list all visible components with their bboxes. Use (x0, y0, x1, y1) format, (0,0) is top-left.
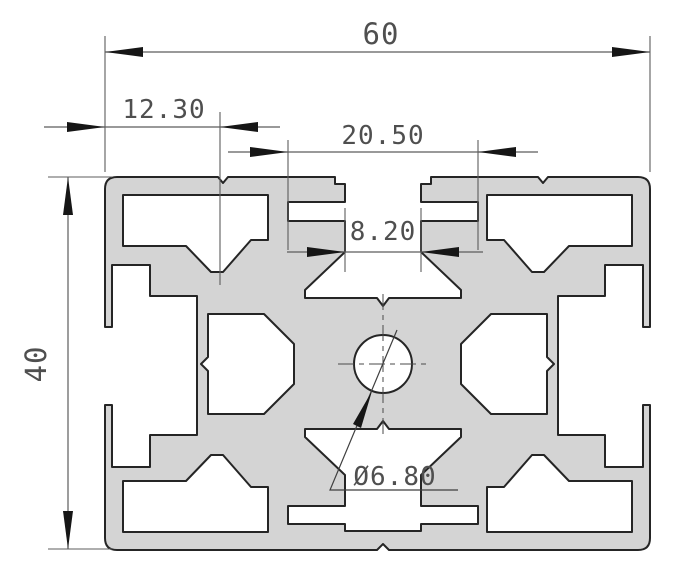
arrowhead-left-icon (105, 47, 143, 57)
dim-center-bore-label: Ø6.80 (353, 462, 436, 492)
dim-overall-width-label: 60 (363, 17, 400, 51)
arrowhead-right-icon (220, 122, 258, 132)
dim-slot-outer-label: 20.50 (341, 121, 424, 151)
arrowhead-right-icon (612, 47, 650, 57)
dim-slot-opening-label: 8.20 (350, 217, 417, 247)
dim-overall-height: 40 (19, 177, 112, 549)
dim-slot-offset-label: 12.30 (122, 95, 205, 125)
profile-drawing-svg: 60 12.30 20.50 8.20 40 Ø6 (0, 0, 699, 569)
arrowhead-top-icon (63, 177, 73, 215)
drawing-canvas: 60 12.30 20.50 8.20 40 Ø6 (0, 0, 699, 569)
arrowhead-bottom-icon (63, 511, 73, 549)
arrowhead-right-icon (478, 147, 516, 157)
arrowhead-left-icon (250, 147, 288, 157)
arrowhead-left-icon (67, 122, 105, 132)
dim-overall-height-label: 40 (19, 346, 53, 383)
